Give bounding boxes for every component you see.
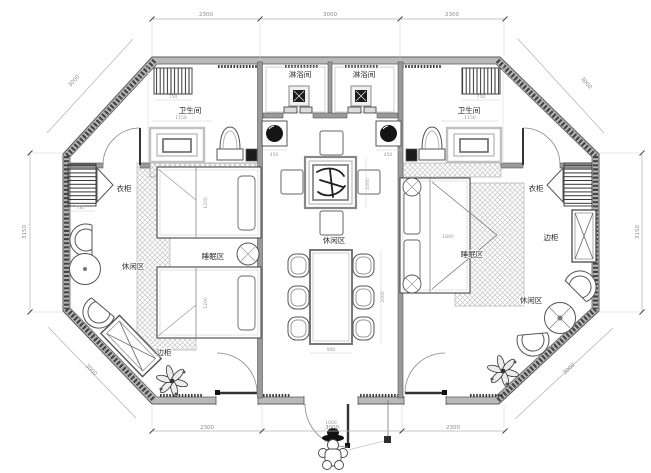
bed-single-2 [157,267,261,338]
bedroom-door-right [405,353,447,395]
washbasin-left [262,121,287,146]
dim-bath-right: 1150 [464,115,476,121]
label-cabinet-left: 边柜 [157,347,172,357]
bed-single-1 [157,167,261,238]
bedroom-left [68,164,261,397]
lounge-center-area [262,121,401,344]
bathroom-door-right [523,128,560,165]
lounge-chair-left-1 [70,224,92,256]
dim-top-1: 2300 [199,12,213,18]
dim-top-3: 2300 [445,12,459,18]
dining-table [288,250,374,344]
dim-top-2: 3000 [323,12,337,18]
floor-drain-left [246,149,257,161]
round-table-right [545,303,576,334]
label-bathroom-left: 卫生间 [179,105,202,115]
dim-diag-tl: 3000 [67,74,81,89]
radiator-right [462,68,500,94]
toilet-left [217,127,243,160]
floor-drain-right [406,149,417,161]
bedside-table-left [237,243,259,265]
label-wardrobe-left: 衣柜 [117,183,132,193]
wardrobe-left [68,164,96,206]
label-lounge-center: 休闲区 [323,235,346,245]
round-table-left [70,254,101,285]
dim-entrance: 1000 [325,420,337,426]
shower-drain-right [351,86,371,106]
label-shower-left: 淋浴间 [289,69,312,79]
dim-bottom-1: 2300 [200,425,214,431]
dim-radiator-left: 750 [169,94,178,100]
label-sleep-right: 睡眠区 [461,250,484,259]
dim-bed-single-2: 1200 [203,297,209,309]
dim-basin-right: 450 [384,152,393,158]
bathroom-door-left [103,128,140,165]
wardrobe-door-right [547,168,563,202]
label-shower-right: 淋浴间 [353,69,376,79]
dim-diag-tr: 3000 [579,76,593,91]
wardrobe-right [564,163,592,206]
shower-tray-left [150,128,204,162]
label-lounge-right: 休闲区 [520,295,543,305]
dim-wardrobe-left: 750 [76,205,85,211]
floor-plan: 2300 3000 2300 2300 3000 2300 3150 3150 … [0,0,651,473]
shower-tray-right [447,128,501,162]
plant-left [156,365,189,398]
dim-tea-table: 1000 [365,178,371,190]
dim-basin-left: 450 [270,152,279,158]
rug-band-right [403,163,501,177]
label-lounge-left: 休闲区 [122,261,145,271]
floor-plan-canvas: 2300 3000 2300 2300 3000 2300 3150 3150 … [0,0,651,473]
label-cabinet-right: 边柜 [544,232,559,242]
wardrobe-door-left [97,168,113,202]
label-sleep-left: 睡眠区 [202,252,225,261]
dim-right: 3150 [635,225,641,239]
dim-diag-br: 3000 [562,362,577,376]
washbasin-right [376,121,401,146]
dim-diag-bl: 3000 [84,363,98,378]
dim-bed-single-1: 1200 [203,197,209,209]
dim-dining-length: 2000 [380,291,386,303]
toilet-right [419,127,445,160]
entrance [305,400,391,470]
dim-radiator-right: 750 [477,94,486,100]
dim-bed-double: 1800 [442,234,454,240]
bathroom-right [406,68,560,165]
shower-drain-left [289,86,309,106]
dim-dining-width: 900 [327,347,336,353]
dim-bottom-3: 2300 [446,425,460,431]
label-wardrobe-right: 衣柜 [529,183,544,193]
bedroom-door-left [215,353,257,395]
dim-left: 3150 [22,225,28,239]
side-cabinet-right [572,210,596,262]
dim-bath-left: 1150 [175,115,187,121]
radiator-left [154,68,192,94]
figurine [319,428,348,470]
label-bathroom-right: 卫生间 [458,105,481,115]
